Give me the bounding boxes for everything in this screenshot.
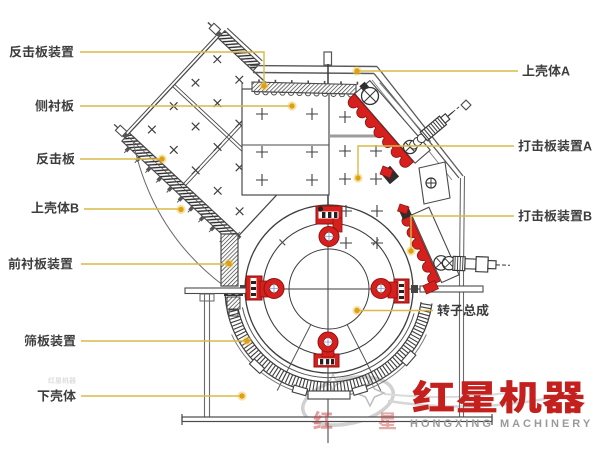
svg-text:HONGXING MACHINERY: HONGXING MACHINERY: [410, 418, 593, 430]
svg-text:B: B: [583, 210, 592, 224]
svg-text:A: A: [561, 65, 570, 79]
svg-text:B: B: [70, 202, 79, 216]
svg-text:A: A: [583, 140, 592, 154]
